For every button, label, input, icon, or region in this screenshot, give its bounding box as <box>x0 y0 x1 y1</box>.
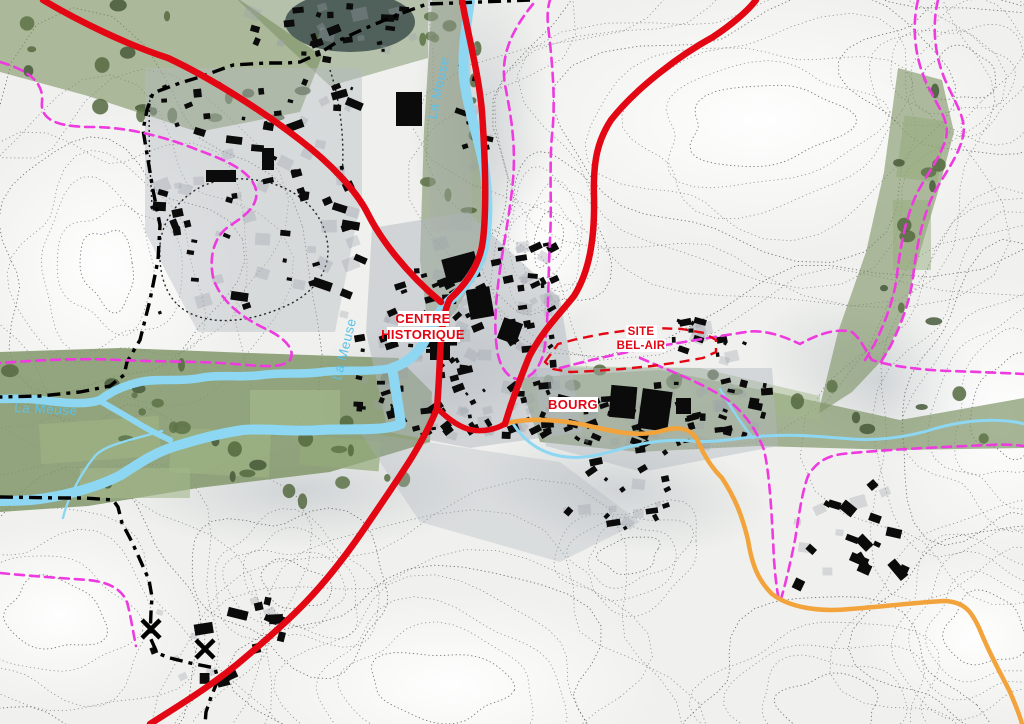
building <box>200 673 210 684</box>
tree-clump <box>249 460 266 471</box>
urban-texture <box>633 509 644 518</box>
large-building <box>262 148 274 170</box>
tree-clump <box>916 404 928 410</box>
urban-texture <box>516 241 530 253</box>
building <box>161 98 167 102</box>
tree-clump <box>952 386 966 401</box>
tree-clump <box>138 408 146 415</box>
tree-clump <box>1 364 19 377</box>
tree-clump <box>827 380 838 393</box>
urban-texture <box>578 504 592 516</box>
urban-texture <box>193 176 204 185</box>
large-building <box>466 286 495 320</box>
urban-texture <box>307 246 316 253</box>
urban-texture <box>520 277 527 283</box>
building <box>672 337 676 343</box>
large-building <box>637 388 672 432</box>
building <box>203 113 210 119</box>
building <box>528 273 538 279</box>
tree-clump <box>92 99 108 115</box>
building <box>541 283 545 288</box>
large-building <box>396 92 422 126</box>
tree-clump <box>331 446 347 453</box>
map-canvas: La Meuse La Meuse La Meuse CENTRE HISTOR… <box>0 0 1024 724</box>
building <box>282 258 287 263</box>
urban-texture <box>255 233 271 246</box>
building <box>414 268 420 274</box>
tree-clump <box>173 421 190 434</box>
building <box>274 110 282 116</box>
urban-texture <box>611 438 620 446</box>
building <box>502 432 511 439</box>
urban-texture <box>695 422 704 429</box>
tree-clump <box>178 358 185 372</box>
building <box>346 3 353 10</box>
tree-clump <box>298 493 307 509</box>
tree-clump <box>979 433 989 443</box>
tree-clump <box>880 285 888 291</box>
building <box>322 56 331 63</box>
tree-clump <box>228 441 242 457</box>
tree-clump <box>283 484 296 498</box>
building <box>468 414 472 418</box>
urban-texture <box>478 349 492 360</box>
tree-clump <box>852 412 860 424</box>
tree-clump <box>893 159 905 167</box>
building <box>153 202 166 212</box>
building <box>654 382 662 389</box>
building <box>292 7 304 14</box>
building <box>280 230 291 237</box>
tree-clump <box>239 470 255 478</box>
tree-clump <box>230 471 236 482</box>
building <box>674 382 679 385</box>
building <box>242 116 246 120</box>
building <box>549 360 556 368</box>
centre-historique-line1: CENTRE <box>395 311 450 326</box>
site-bel-air-line2: BEL-AIR <box>617 340 666 352</box>
centre-historique-line2: HISTORIQUE <box>381 327 465 342</box>
tree-clump <box>791 393 804 409</box>
urban-texture <box>631 478 645 490</box>
urban-texture <box>321 220 337 233</box>
urban-texture <box>835 529 844 536</box>
building <box>714 427 723 433</box>
tree-clump <box>20 16 35 30</box>
building <box>193 89 202 98</box>
building <box>327 12 334 19</box>
large-building <box>609 385 638 419</box>
tree-clump <box>164 11 170 21</box>
building <box>301 51 306 55</box>
tree-clump <box>859 424 875 434</box>
field-patch <box>250 390 340 425</box>
tree-clump <box>898 302 905 313</box>
building <box>517 285 524 292</box>
label-bourg: BOURG <box>548 397 598 412</box>
building <box>333 105 341 112</box>
building <box>381 49 384 52</box>
urban-texture <box>608 506 616 513</box>
urban-texture <box>548 380 560 390</box>
building <box>284 19 295 27</box>
building <box>408 344 413 348</box>
building <box>763 383 767 388</box>
tree-clump <box>27 46 36 52</box>
tree-clump <box>419 33 426 46</box>
building <box>360 348 364 352</box>
urban-texture <box>357 35 364 41</box>
urban-texture <box>823 568 833 576</box>
building <box>459 365 468 371</box>
building <box>635 447 646 454</box>
bourg-label: BOURG <box>548 397 598 412</box>
tree-clump <box>132 392 138 398</box>
tree-clump <box>335 476 350 489</box>
building <box>688 329 693 333</box>
tree-clump <box>95 57 110 73</box>
building <box>258 88 264 95</box>
tree-clump <box>925 317 942 325</box>
site-bel-air-line1: SITE <box>628 326 655 338</box>
building <box>761 388 773 396</box>
building <box>353 401 363 407</box>
tree-clump <box>348 444 354 456</box>
tree-clump <box>136 108 145 122</box>
large-building <box>206 170 236 182</box>
building <box>377 381 385 385</box>
large-building <box>676 398 691 414</box>
building <box>340 166 344 170</box>
building <box>191 277 199 281</box>
site-map: La Meuse La Meuse La Meuse CENTRE HISTOR… <box>0 0 1024 724</box>
tree-clump <box>152 399 164 408</box>
